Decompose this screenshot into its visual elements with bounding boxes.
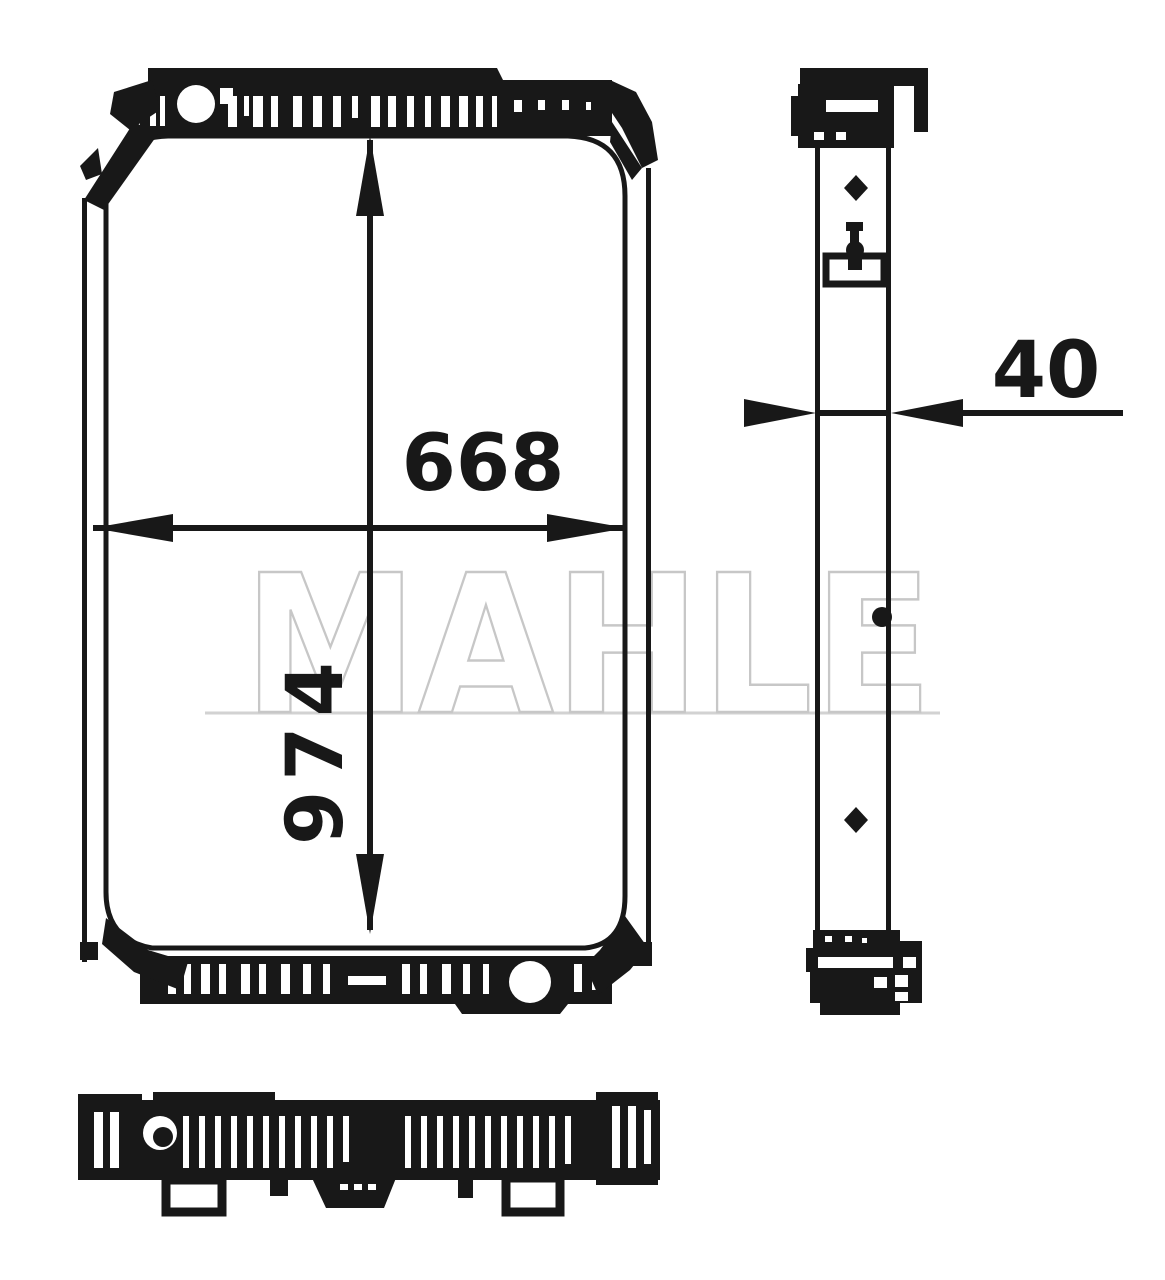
dimension-width: 668: [93, 419, 627, 542]
side-fitting-diamond-upper: [844, 175, 868, 201]
side-top-tank: [791, 68, 928, 148]
radiator-bottom-view: [78, 1092, 660, 1212]
drain-plug-circle: [509, 961, 551, 1003]
frame-right-line: [646, 168, 651, 948]
arrowhead-inward-right-icon: [744, 399, 816, 427]
bottom-left-bracket: [80, 918, 188, 990]
radiator-spec-drawing: MAHLE: [0, 0, 1165, 1280]
dimension-depth-line: [816, 410, 891, 416]
side-bottom-tank: [806, 930, 922, 1015]
frame-left-line: [82, 198, 87, 962]
dimension-width-label: 668: [402, 419, 565, 509]
bottom-view-brackets: [166, 1178, 560, 1212]
bottom-right-bracket: [585, 916, 652, 995]
side-fitting-diamond-lower: [844, 807, 868, 833]
dimension-width-line: [93, 525, 627, 531]
top-left-bracket: [80, 80, 160, 210]
side-mounting-clamp: [826, 222, 884, 284]
dimension-depth: 40: [744, 326, 1123, 427]
side-body-left-line: [815, 148, 820, 930]
arrowhead-inward-left-icon: [891, 399, 963, 427]
dimension-height-line: [367, 140, 373, 930]
side-fitting-dot: [872, 607, 892, 627]
filler-neck-circle: [177, 85, 215, 123]
dimension-height-label: 974: [271, 652, 361, 845]
dimension-depth-label: 40: [992, 326, 1101, 416]
arrowhead-down-icon: [356, 854, 384, 934]
arrowhead-up-icon: [356, 136, 384, 216]
technical-drawing-svg: MAHLE: [0, 0, 1165, 1280]
